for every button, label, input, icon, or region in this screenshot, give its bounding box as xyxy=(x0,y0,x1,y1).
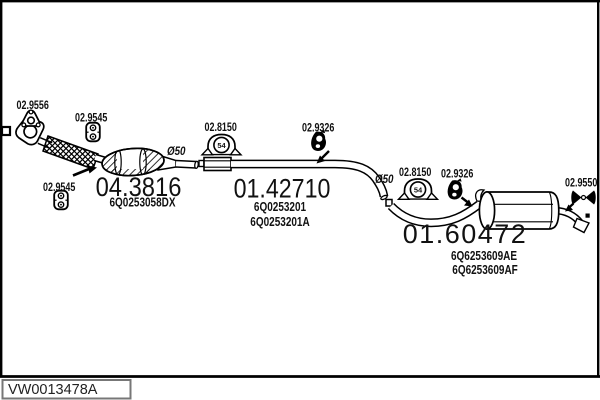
rubber-hanger-icon-1 xyxy=(86,123,100,142)
clamp-icon-2 xyxy=(399,179,438,199)
clamp-label-1: 02.8150 xyxy=(205,122,238,134)
middle-part-number: 01.42710 xyxy=(234,174,331,204)
flange-gasket-icon xyxy=(22,110,40,127)
front-oem-number: 6Q0253058DX xyxy=(109,197,175,210)
tailpipe-mount-square xyxy=(586,214,590,218)
flange-gasket-label: 02.9556 xyxy=(17,100,50,112)
rear-hanger-icon xyxy=(571,191,595,205)
middle-pipe-sleeve xyxy=(204,158,231,171)
rubber-mount-label-1: 02.9326 xyxy=(302,123,335,135)
rear-part-number: 01.60472 xyxy=(403,219,528,249)
middle-oem-number-a: 6Q0253201 xyxy=(254,201,306,214)
catalog-diagram-page: 54 xyxy=(0,0,600,400)
rear-oem-number-b: 6Q6253609AF xyxy=(452,264,518,277)
front-mount-square xyxy=(2,127,10,135)
rubber-mount-icon-2 xyxy=(448,178,462,199)
middle-oem-number-b: 6Q0253201A xyxy=(250,216,309,229)
rear-oem-number-a: 6Q6253609AE xyxy=(451,250,517,263)
clamp-label-2: 02.8150 xyxy=(399,167,432,179)
joint-square-2 xyxy=(386,200,392,207)
clamp-icon-1 xyxy=(202,135,241,155)
rubber-hanger-label-1: 02.9545 xyxy=(75,113,108,125)
rubber-mount-label-2: 02.9326 xyxy=(441,169,474,181)
tailpipe-tip xyxy=(574,219,590,233)
pipe-diameter-label-1: Ø50 xyxy=(167,145,186,158)
pointer-arrow-mount-2 xyxy=(462,198,473,207)
vehicle-code-label: VW0013478A xyxy=(8,382,98,398)
pipe-diameter-label-2: Ø50 xyxy=(375,173,394,186)
rubber-hanger-label-2: 02.9545 xyxy=(43,182,76,194)
pointer-arrow-rear-hanger xyxy=(565,204,574,212)
exhaust-system-diagram: 54 xyxy=(0,0,600,400)
pointer-arrow-hanger-2 xyxy=(73,166,97,176)
rear-hanger-label: 02.9550 xyxy=(565,178,598,190)
cat-outlet-pipe-end xyxy=(194,161,198,169)
